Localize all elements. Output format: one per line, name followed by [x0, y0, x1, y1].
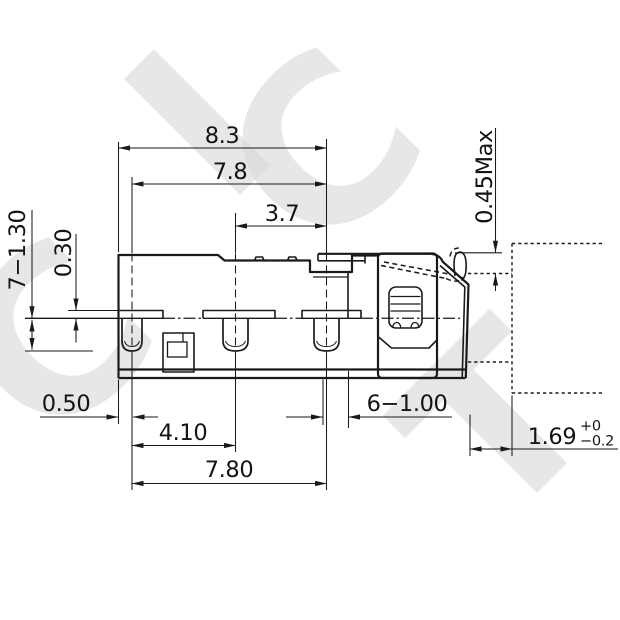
dim-pin-width-label: 6−1.00 [367, 391, 448, 417]
dim-overall-width-label: 8.3 [205, 123, 240, 149]
dim-outer-pin-span-label: 7.8 [213, 159, 248, 185]
dim-panel-gap-upper-tolerance: +0 [580, 419, 601, 435]
dim-shoulder-height-label: 0.30 [51, 229, 77, 278]
dim-panel-gap-label: 1.69 [528, 424, 577, 450]
dim-first-to-third-pin-label: 7.80 [205, 457, 254, 483]
dim-panel-gap-lower-tolerance: −0.2 [580, 434, 614, 450]
dim-first-to-second-pin-label: 4.10 [159, 420, 208, 446]
dim-edge-to-first-pin-label: 0.50 [42, 391, 91, 417]
technical-drawing: C I C T [0, 0, 620, 620]
dim-inner-pin-span-label: 3.7 [265, 201, 300, 227]
drawing-canvas: C I C T [0, 0, 620, 620]
dim-pin-length-label: 7−1.30 [5, 210, 31, 291]
dim-lever-height-label: 0.45Max [472, 130, 498, 224]
